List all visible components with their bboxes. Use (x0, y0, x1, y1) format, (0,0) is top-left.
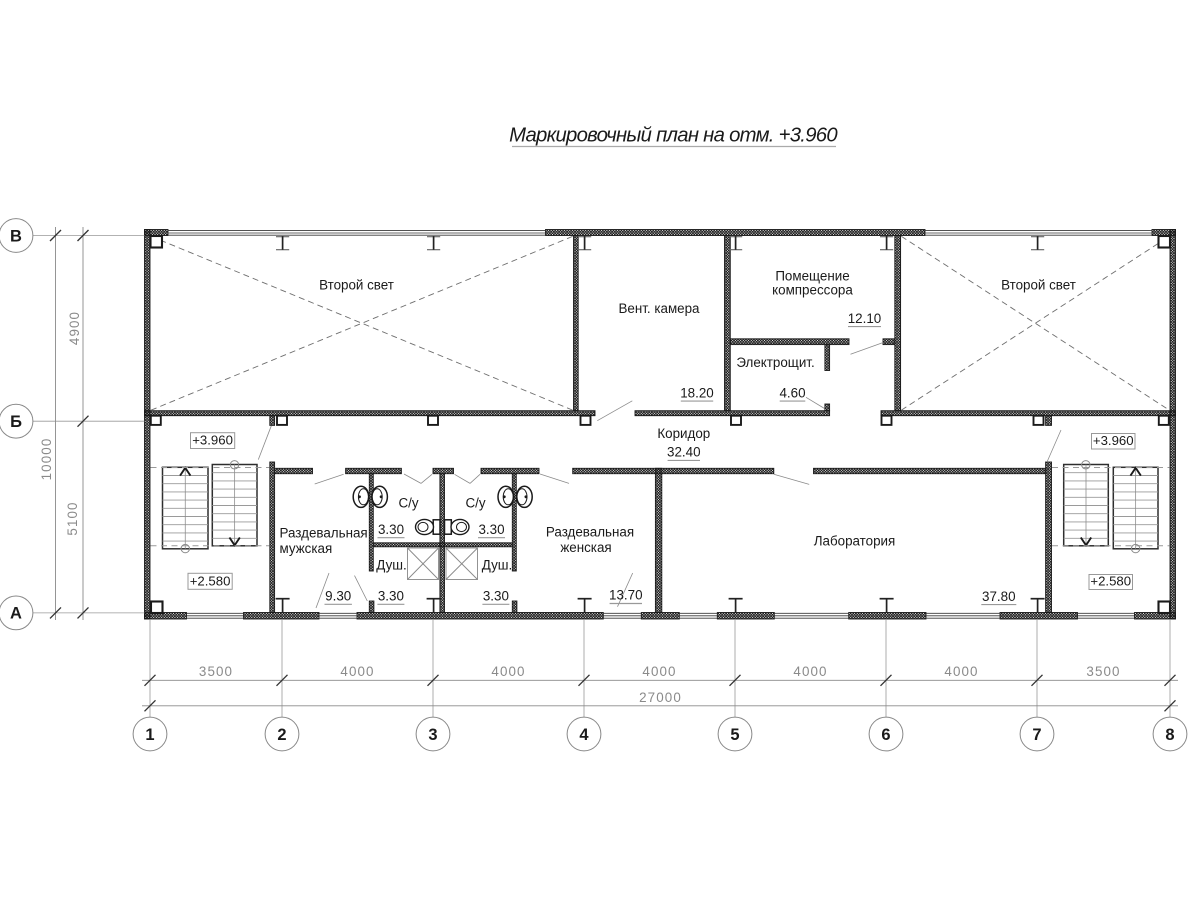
svg-text:Коридор: Коридор (657, 426, 710, 441)
svg-text:+3.960: +3.960 (1093, 433, 1134, 448)
svg-text:10000: 10000 (39, 438, 54, 481)
svg-text:3500: 3500 (199, 664, 233, 679)
svg-text:3.30: 3.30 (478, 522, 504, 537)
svg-text:+2.580: +2.580 (1090, 574, 1131, 589)
svg-text:С/у: С/у (465, 495, 485, 510)
svg-text:С/у: С/у (398, 495, 418, 510)
svg-text:+3.960: +3.960 (192, 433, 233, 448)
svg-text:2: 2 (277, 726, 286, 744)
svg-text:В: В (10, 227, 22, 245)
svg-text:Б: Б (10, 413, 22, 431)
svg-text:32.40: 32.40 (667, 445, 701, 460)
svg-text:27000: 27000 (639, 690, 682, 705)
svg-text:3.30: 3.30 (378, 589, 404, 604)
svg-text:8: 8 (1165, 726, 1174, 744)
svg-text:Электрощит.: Электрощит. (736, 355, 814, 370)
svg-text:женская: женская (560, 540, 611, 555)
svg-text:12.10: 12.10 (848, 311, 882, 326)
svg-text:18.20: 18.20 (680, 385, 714, 400)
svg-text:+2.580: +2.580 (190, 573, 231, 588)
svg-text:Раздевальная: Раздевальная (280, 526, 368, 541)
svg-text:Раздевальная: Раздевальная (546, 525, 634, 540)
svg-text:1: 1 (145, 726, 154, 744)
svg-text:А: А (10, 605, 22, 623)
svg-text:4000: 4000 (793, 664, 827, 679)
svg-text:3500: 3500 (1086, 664, 1120, 679)
svg-text:7: 7 (1032, 726, 1041, 744)
svg-text:Маркировочный план на отм. +3.: Маркировочный план на отм. +3.960 (509, 125, 838, 147)
svg-text:Вент. камера: Вент. камера (618, 301, 700, 316)
svg-text:Второй свет: Второй свет (1001, 278, 1076, 293)
svg-text:мужская: мужская (280, 541, 333, 556)
svg-text:5100: 5100 (65, 501, 80, 535)
svg-text:4900: 4900 (67, 311, 82, 345)
svg-text:13.70: 13.70 (609, 588, 643, 603)
svg-text:37.80: 37.80 (982, 589, 1016, 604)
svg-text:компрессора: компрессора (772, 283, 853, 298)
svg-text:9.30: 9.30 (325, 589, 351, 604)
svg-text:5: 5 (730, 726, 739, 744)
svg-text:Душ.: Душ. (482, 558, 513, 573)
svg-text:4000: 4000 (340, 664, 374, 679)
svg-text:4: 4 (579, 726, 589, 744)
svg-text:4000: 4000 (491, 664, 525, 679)
svg-text:3: 3 (428, 726, 437, 744)
svg-text:Лаборатория: Лаборатория (814, 534, 896, 549)
svg-text:4.60: 4.60 (779, 385, 805, 400)
svg-text:Душ.: Душ. (376, 558, 407, 573)
svg-text:6: 6 (881, 726, 890, 744)
svg-text:3.30: 3.30 (483, 589, 509, 604)
svg-text:4000: 4000 (944, 664, 978, 679)
svg-text:3.30: 3.30 (378, 522, 404, 537)
svg-text:Второй свет: Второй свет (319, 278, 394, 293)
svg-text:4000: 4000 (642, 664, 676, 679)
svg-text:Помещение: Помещение (775, 269, 849, 284)
